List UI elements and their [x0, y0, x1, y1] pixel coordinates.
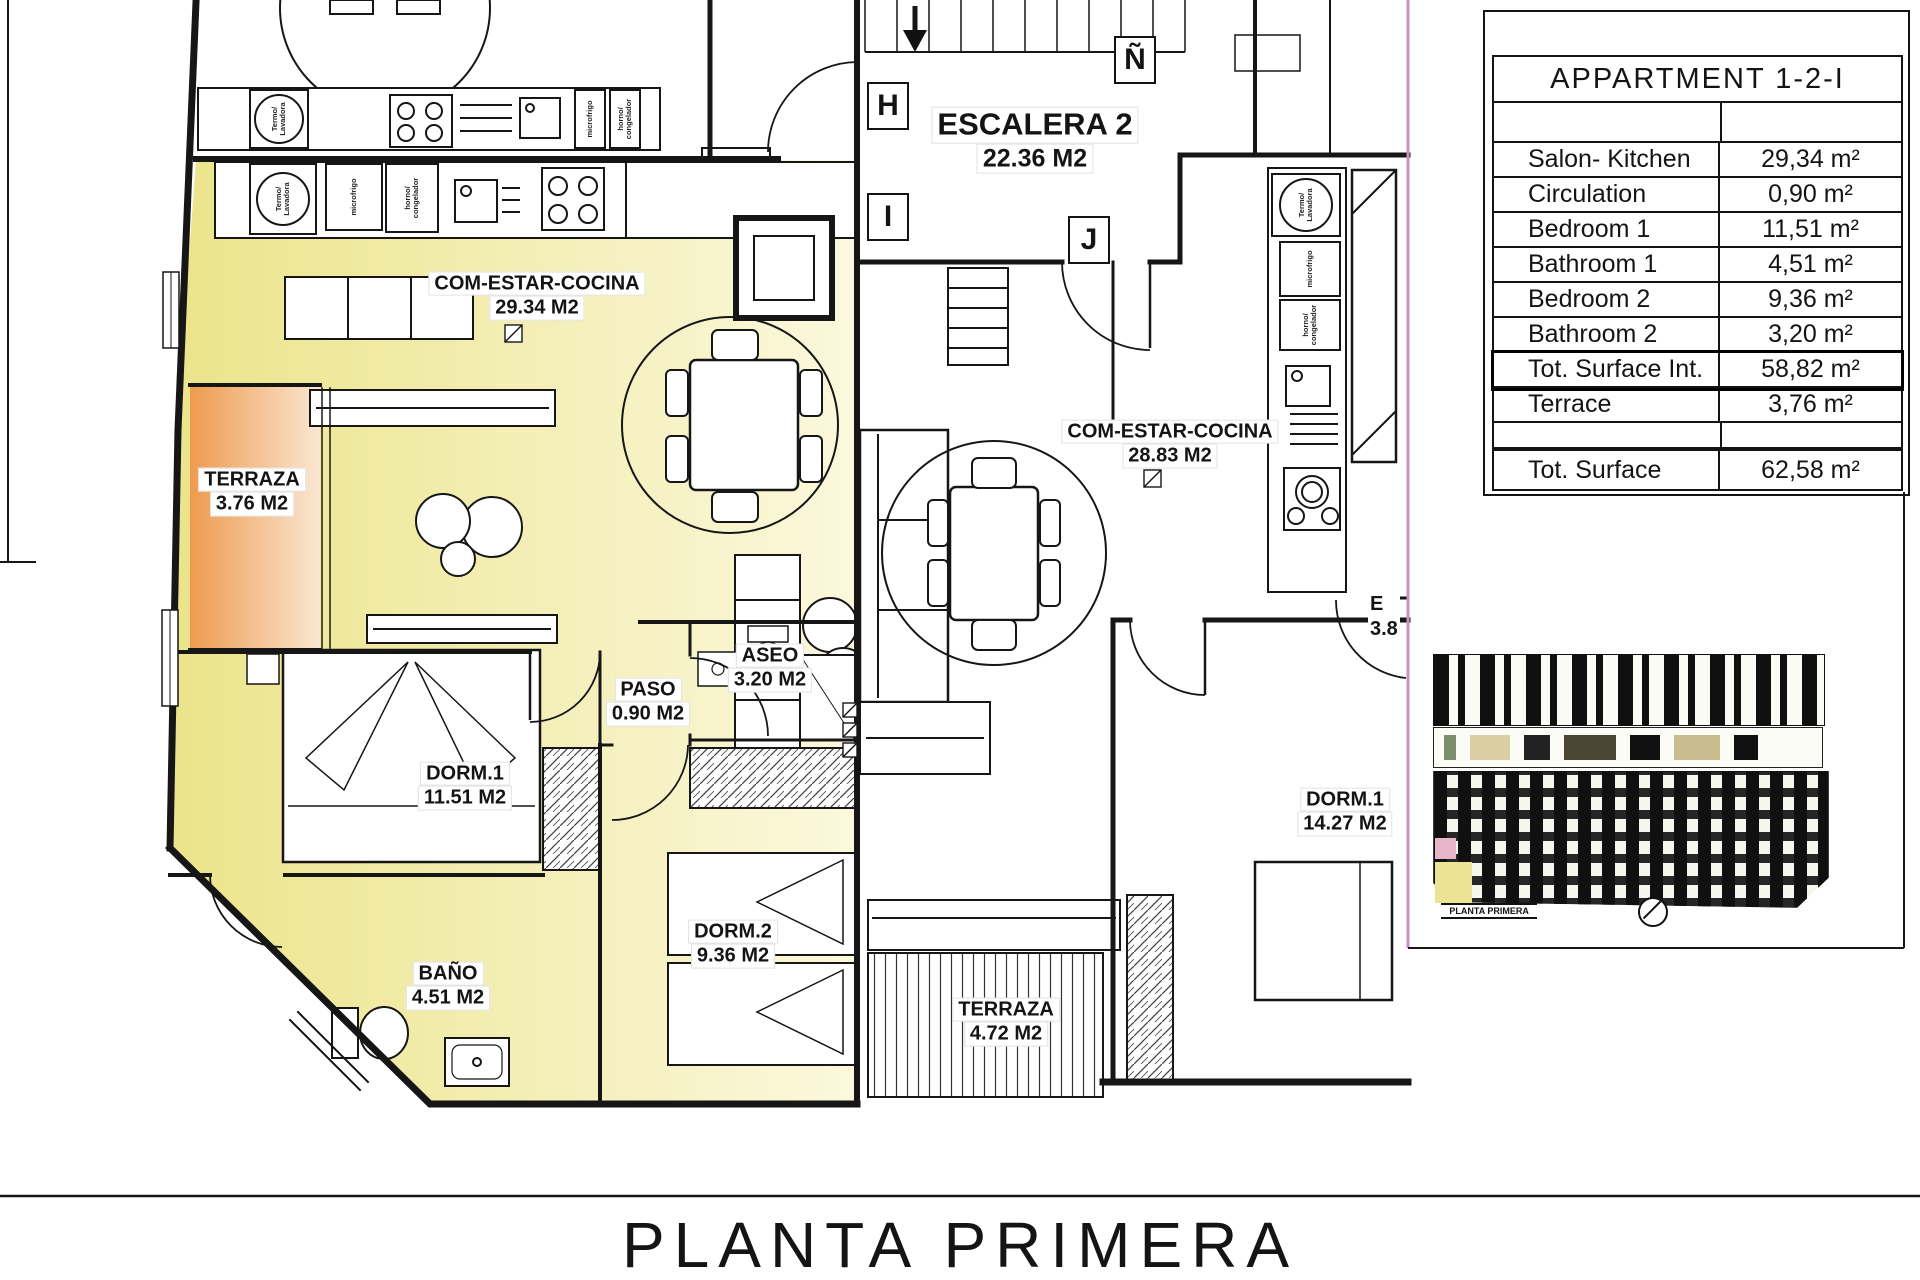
sink-left [455, 180, 497, 222]
room-label-dorm1-left: DORM.111.51 M2 [418, 762, 512, 811]
wardrobe-dorm1-left [543, 748, 600, 870]
floor-plan-sheet: COM-ESTAR-COCINA29.34 M2 TERRAZA3.76 M2 … [0, 0, 1920, 1280]
sofa-bench-right [868, 900, 1120, 950]
label-fridge: microfrigo [1306, 250, 1314, 287]
label-boiler-washer: Termo/ Lavadora [271, 102, 287, 135]
table-row: Bedroom 1 11,51 m² [1494, 213, 1901, 248]
table-row-grand-total: Tot. Surface 62,58 m² [1494, 449, 1901, 489]
room-label-terraza-left: TERRAZA3.76 M2 [198, 468, 306, 517]
window [162, 610, 178, 706]
thumbnail-courtyard-band [1433, 727, 1823, 768]
table-row: Bedroom 2 9,36 m² [1494, 283, 1901, 318]
site-plan-thumbnail: PLANTA PRIMERA [1425, 645, 1835, 938]
table-row: Bathroom 1 4,51 m² [1494, 248, 1901, 283]
wardrobe-dorm2-left [690, 748, 855, 808]
table-row-total-interior: Tot. Surface Int. 58,82 m² [1494, 353, 1901, 388]
table-empty-row [1494, 423, 1901, 449]
room-label-dorm1-right: DORM.114.27 M2 [1297, 788, 1392, 837]
thumbnail-lower-block [1433, 771, 1829, 908]
label-oven: horno/ congelador [404, 178, 420, 218]
stair-arrow-icon [903, 30, 927, 52]
room-label-terraza-bottom: TERRAZA4.72 M2 [952, 998, 1060, 1047]
area-summary-table: APPARTMENT 1-2-I Salon- Kitchen 29,34 m²… [1492, 55, 1903, 491]
toilet-bowl [360, 1007, 408, 1059]
entry-closet [948, 268, 1008, 365]
room-label-aseo: ASEO3.20 M2 [728, 644, 812, 693]
table-row: Circulation 0,90 m² [1494, 178, 1901, 213]
bed-dorm1-right [1255, 862, 1392, 1000]
room-label-salon-left: COM-ESTAR-COCINA29.34 M2 [428, 272, 645, 321]
wardrobe-dorm1-right [1127, 895, 1173, 1080]
partial-neighbor-label: E 3.8 [1368, 592, 1400, 642]
thumbnail-upper-block [1433, 654, 1825, 726]
nightstand [247, 654, 279, 684]
marker-h: H [867, 82, 909, 130]
room-label-escalera: ESCALERA 222.36 M2 [931, 107, 1138, 174]
table-row: Bathroom 2 3,20 m² [1494, 318, 1901, 353]
room-label-salon-right: COM-ESTAR-COCINA28.83 M2 [1061, 420, 1278, 469]
table-row: Salon- Kitchen 29,34 m² [1494, 143, 1901, 178]
label-oven: horno/ congelador [1302, 305, 1318, 345]
label-fridge: microfrigo [350, 178, 358, 215]
table-row: Terrace 3,76 m² [1494, 388, 1901, 423]
label-boiler-washer: Termo/ Lavadora [275, 182, 291, 215]
room-label-bano: BAÑO4.51 M2 [406, 962, 490, 1011]
room-label-paso: PASO0.90 M2 [606, 678, 690, 727]
thumbnail-highlight-patch [1435, 862, 1472, 903]
room-label-dorm2-left: DORM.29.36 M2 [688, 920, 778, 969]
marker-i: I [867, 193, 909, 241]
window [163, 272, 179, 348]
thumbnail-pink-patch [1435, 838, 1456, 859]
dining-table-right [950, 487, 1038, 620]
label-boiler-washer: Termo/ Lavadora [1298, 188, 1314, 221]
compass-icon [1638, 897, 1668, 927]
table-empty-row [1494, 103, 1901, 143]
table-title: APPARTMENT 1-2-I [1494, 57, 1901, 103]
label-oven: horno/ congelador [617, 99, 633, 139]
thumbnail-caption: PLANTA PRIMERA [1441, 903, 1537, 919]
marker-n-tilde: Ñ [1114, 36, 1156, 84]
dining-table-left [690, 360, 798, 490]
sheet-title: PLANTA PRIMERA [460, 1208, 1460, 1280]
terrace-highlight [190, 385, 320, 650]
marker-j: J [1068, 216, 1110, 264]
label-fridge: microfrigo [586, 100, 594, 137]
